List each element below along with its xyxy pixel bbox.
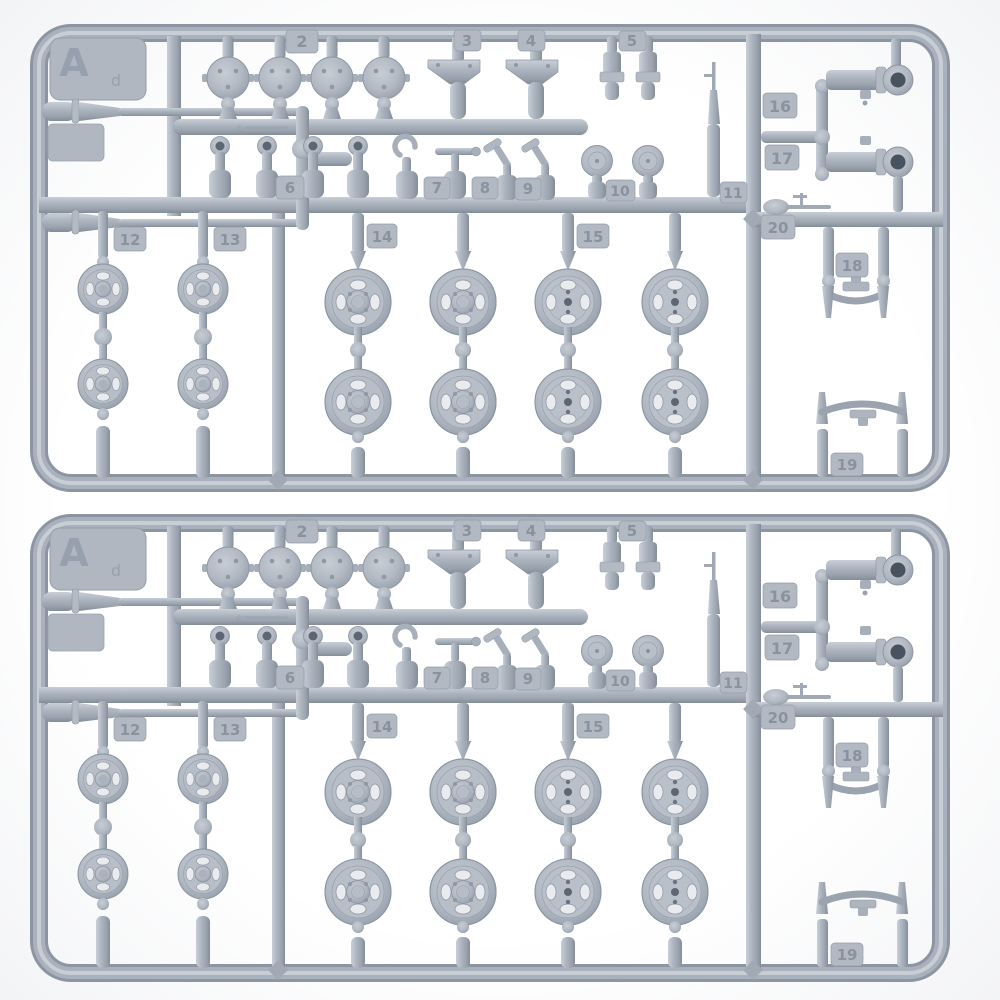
sprue-panel-bottom bbox=[39, 520, 943, 980]
sprue-panel-top bbox=[39, 30, 943, 490]
model-kit-sprue-photo: © A d bbox=[0, 0, 1000, 1000]
sprue-scene: © A d bbox=[0, 0, 1000, 1000]
